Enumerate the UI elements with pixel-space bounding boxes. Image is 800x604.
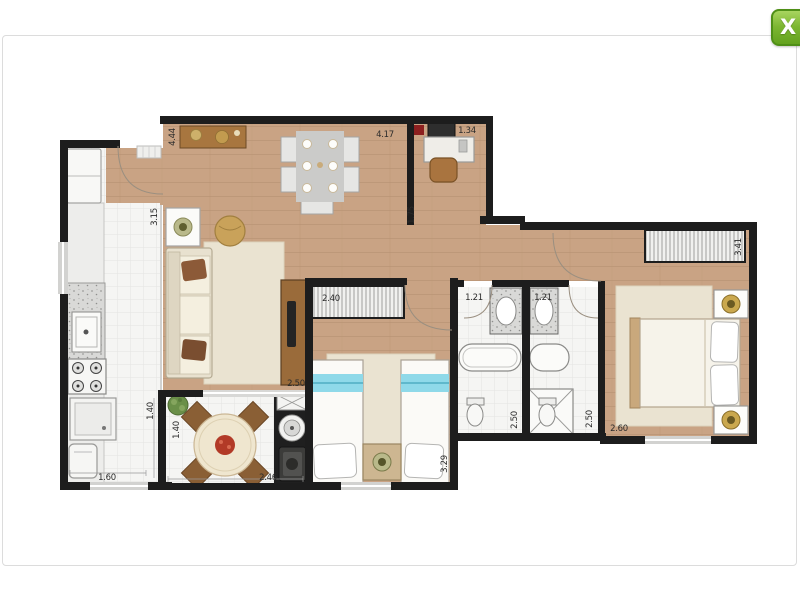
tv <box>287 301 296 347</box>
tv-cabinet <box>281 280 308 385</box>
dim-kitchen-length: 1.60 <box>98 473 116 483</box>
dim-bath2-width: 1.21 <box>534 293 552 303</box>
sofa-pillow <box>181 258 208 281</box>
bed-double <box>630 318 740 408</box>
bedroom1-nightstand-bottom <box>714 406 748 434</box>
side-table-lamp <box>166 208 200 246</box>
bedroom2-nightstand <box>363 444 401 480</box>
dim-bedroom2-depth: 3.29 <box>440 455 450 473</box>
laundry-tank <box>277 395 307 410</box>
pouf <box>215 216 245 246</box>
pillow <box>313 443 357 479</box>
pillow <box>710 365 738 406</box>
bathroom2-tub <box>530 344 569 371</box>
bathroom1-sink <box>496 297 516 325</box>
dim-bath2-depth: 2.50 <box>585 410 595 428</box>
bedroom1-wardrobe <box>645 230 745 262</box>
bed-single-left <box>309 360 363 486</box>
dim-living-top-length: 4.17 <box>376 130 394 140</box>
desk-item <box>414 125 424 135</box>
sofa <box>166 248 212 378</box>
plant <box>168 395 188 415</box>
dryer <box>279 447 306 481</box>
pillow <box>404 443 444 479</box>
close-icon: X <box>780 17 796 38</box>
computer-monitor <box>428 123 455 137</box>
dim-wardrobe2-width: 2.40 <box>322 294 340 304</box>
bathroom1-toilet <box>467 398 484 426</box>
floor-plan-svg: 4.44 3.15 1.40 1.40 1.60 2.46 2.50 2.40 … <box>0 0 800 600</box>
dim-office-depth: 1.75 <box>407 206 417 224</box>
sideboard <box>180 126 246 148</box>
dim-balcony-depth: 1.40 <box>172 421 182 439</box>
dim-balcony-width: 2.46 <box>259 473 277 483</box>
living-rug <box>204 242 284 384</box>
sofa-pillow <box>181 339 207 361</box>
bedroom1 <box>630 230 748 434</box>
floor-plan: 4.44 3.15 1.40 1.40 1.60 2.46 2.50 2.40 … <box>0 0 800 600</box>
dim-bedroom1-depth: 3.41 <box>734 238 744 256</box>
washing-machine <box>279 415 305 441</box>
dim-living-length: 2.50 <box>287 379 305 389</box>
bathroom2-toilet <box>539 398 556 426</box>
dim-office-width: 1.34 <box>458 126 476 136</box>
desk-item <box>459 140 467 152</box>
dim-living-width: 3.15 <box>150 208 160 226</box>
dishwasher <box>70 398 116 440</box>
bedroom1-nightstand-top <box>714 290 748 318</box>
dim-kitchen-width: 1.40 <box>146 402 156 420</box>
pillow <box>710 322 738 363</box>
desk-chair <box>430 158 457 182</box>
dim-bath1-width: 1.21 <box>465 293 483 303</box>
round-table <box>194 414 256 476</box>
close-button[interactable]: X <box>771 9 800 46</box>
stove <box>68 359 106 394</box>
door-mat <box>137 146 161 158</box>
bed-bench <box>630 318 640 408</box>
dim-entry-depth: 4.44 <box>168 128 178 146</box>
laundry-niche <box>274 392 310 484</box>
dim-bedroom1-width: 2.60 <box>610 424 628 434</box>
dim-bath1-depth: 2.50 <box>510 411 520 429</box>
